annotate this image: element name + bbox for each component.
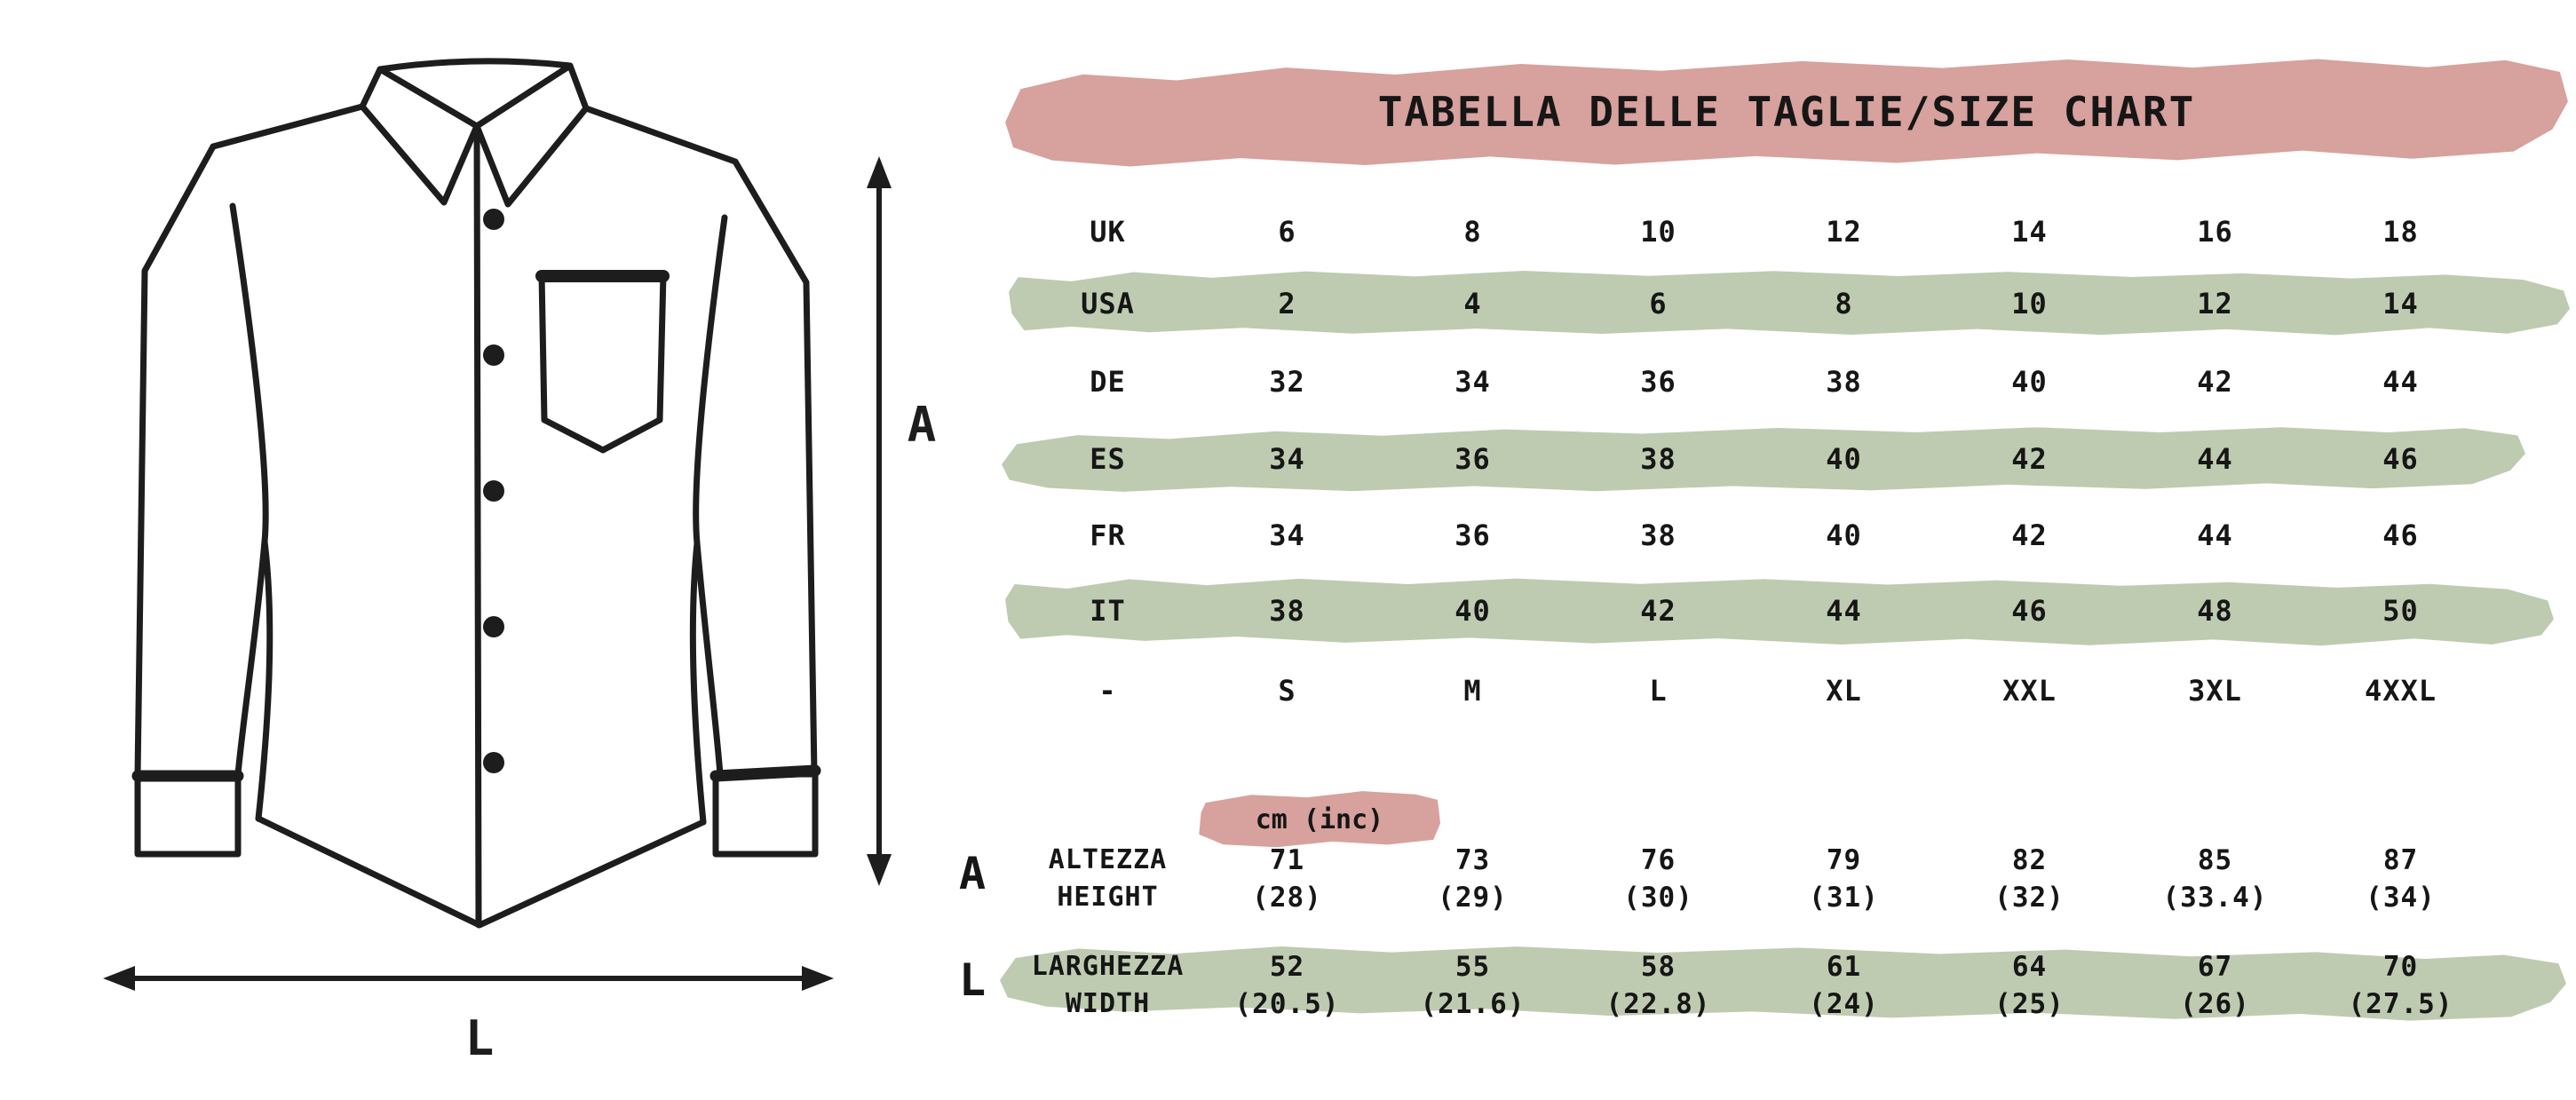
size-system-label: ES (1021, 442, 1194, 476)
size-value: 40 (1380, 594, 1565, 628)
width-value: 52 (20.5) (1194, 948, 1380, 1023)
height-arrow-label: A (908, 397, 937, 453)
right-cuff-band (716, 771, 815, 776)
size-value: 4 (1380, 287, 1565, 321)
width-value: 58 (22.8) (1565, 948, 1751, 1023)
size-row-uk: UK 6 8 10 12 14 16 18 (1021, 201, 2493, 263)
size-value: 8 (1380, 215, 1565, 249)
size-value: 44 (1751, 594, 1937, 628)
size-value: 6 (1565, 287, 1751, 321)
size-row-usa: USA 2 4 6 8 10 12 14 (1021, 273, 2493, 335)
height-row-label: ALTEZZA HEIGHT (1021, 842, 1194, 916)
width-label-en: WIDTH (1021, 985, 1194, 1023)
size-value: 44 (2122, 442, 2308, 476)
size-value: 40 (1937, 365, 2122, 399)
shirt-diagram: A L (0, 0, 1030, 1100)
size-value: 46 (2308, 518, 2493, 552)
unit-label: cm (inc) (1199, 790, 1440, 849)
size-chart-page: A L TABELLA DELLE TAGLIE/SIZE CHART UK 6… (0, 0, 2576, 1100)
button (483, 344, 504, 366)
size-value: 14 (1937, 215, 2122, 249)
collar-left-flap (362, 69, 477, 202)
height-measure-row: ALTEZZA HEIGHT 71 (28) 73 (29) 76 (30) 7… (1021, 842, 2493, 916)
width-value: 67 (26) (2122, 948, 2308, 1023)
size-value: 6 (1194, 215, 1380, 249)
size-value: 50 (2308, 594, 2493, 628)
size-system-label: IT (1021, 594, 1194, 628)
button (483, 616, 504, 637)
size-value: XL (1751, 674, 1937, 708)
height-value: 76 (30) (1565, 842, 1751, 916)
size-value: 44 (2122, 518, 2308, 552)
width-measure-row: LARGHEZZA WIDTH 52 (20.5) 55 (21.6) 58 (… (1021, 948, 2493, 1023)
size-value: 46 (2308, 442, 2493, 476)
width-value: 61 (24) (1751, 948, 1937, 1023)
height-row-letter: A (939, 845, 1005, 902)
height-value: 73 (29) (1380, 842, 1565, 916)
right-sleeve-outer (735, 162, 814, 774)
size-value: 4XXL (2308, 674, 2493, 708)
buttons (483, 209, 504, 773)
button (483, 209, 504, 230)
page-title: TABELLA DELLE TAGLIE/SIZE CHART (1005, 57, 2568, 167)
size-value: 34 (1380, 365, 1565, 399)
size-value: 38 (1565, 442, 1751, 476)
height-arrowhead-bottom (867, 854, 892, 886)
right-shoulder-line (586, 108, 735, 162)
size-value: 36 (1380, 442, 1565, 476)
size-system-label: - (1021, 674, 1194, 708)
height-value: 79 (31) (1751, 842, 1937, 916)
size-value: 38 (1565, 518, 1751, 552)
collar-right-flap (477, 66, 586, 204)
size-value: 34 (1194, 442, 1380, 476)
left-cuff (138, 774, 238, 854)
size-value: 34 (1194, 518, 1380, 552)
width-arrowhead-right (802, 966, 834, 991)
size-value: 40 (1751, 518, 1937, 552)
size-value: 36 (1380, 518, 1565, 552)
size-value: 42 (1565, 594, 1751, 628)
height-value: 71 (28) (1194, 842, 1380, 916)
right-cuff (716, 774, 815, 854)
size-value: 38 (1751, 365, 1937, 399)
size-value: 10 (1565, 215, 1751, 249)
size-value: M (1380, 674, 1565, 708)
size-value: 8 (1751, 287, 1937, 321)
height-value: 82 (32) (1937, 842, 2122, 916)
width-arrow-label: L (465, 1010, 495, 1066)
size-system-label: FR (1021, 518, 1194, 552)
right-sleeve-inner (696, 218, 725, 774)
size-row-es: ES 34 36 38 40 42 44 46 (1021, 428, 2493, 490)
height-label-en: HEIGHT (1021, 879, 1194, 916)
size-value: 12 (1751, 215, 1937, 249)
size-row-fr: FR 34 36 38 40 42 44 46 (1021, 504, 2493, 566)
size-value: 2 (1194, 287, 1380, 321)
size-value: 48 (2122, 594, 2308, 628)
width-arrowhead-left (103, 966, 135, 991)
left-sleeve-outer (138, 146, 213, 774)
size-system-label: USA (1021, 287, 1194, 321)
size-row-de: DE 32 34 36 38 40 42 44 (1021, 351, 2493, 413)
size-row-letters: - S M L XL XXL 3XL 4XXL (1021, 660, 2493, 722)
collar-top-edge (380, 61, 570, 69)
size-value: 10 (1937, 287, 2122, 321)
width-row-label: LARGHEZZA WIDTH (1021, 948, 1194, 1023)
size-value: 14 (2308, 287, 2493, 321)
size-value: 36 (1565, 365, 1751, 399)
size-value: 38 (1194, 594, 1380, 628)
size-value: 42 (2122, 365, 2308, 399)
chest-pocket (542, 274, 663, 450)
size-value: 44 (2308, 365, 2493, 399)
size-value: 12 (2122, 287, 2308, 321)
size-value: 42 (1937, 518, 2122, 552)
left-sleeve-inner (233, 206, 266, 774)
size-value: 16 (2122, 215, 2308, 249)
width-label-it: LARGHEZZA (1021, 948, 1194, 985)
height-value: 87 (34) (2308, 842, 2493, 916)
size-value: 40 (1751, 442, 1937, 476)
size-value: 18 (2308, 215, 2493, 249)
button (483, 752, 504, 773)
height-arrowhead-top (867, 156, 892, 188)
width-value: 55 (21.6) (1380, 948, 1565, 1023)
button-placket (477, 126, 479, 925)
size-value: S (1194, 674, 1380, 708)
width-row-letter: L (939, 952, 1005, 1009)
size-value: L (1565, 674, 1751, 708)
size-value: XXL (1937, 674, 2122, 708)
left-shoulder-line (213, 107, 362, 146)
button (483, 480, 504, 502)
size-system-label: UK (1021, 215, 1194, 249)
size-row-it: IT 38 40 42 44 46 48 50 (1021, 580, 2493, 642)
height-label-it: ALTEZZA (1021, 842, 1194, 879)
size-value: 42 (1937, 442, 2122, 476)
width-value: 70 (27.5) (2308, 948, 2493, 1023)
size-system-label: DE (1021, 365, 1194, 399)
size-value: 46 (1937, 594, 2122, 628)
width-value: 64 (25) (1937, 948, 2122, 1023)
size-value: 32 (1194, 365, 1380, 399)
size-value: 3XL (2122, 674, 2308, 708)
height-value: 85 (33.4) (2122, 842, 2308, 916)
